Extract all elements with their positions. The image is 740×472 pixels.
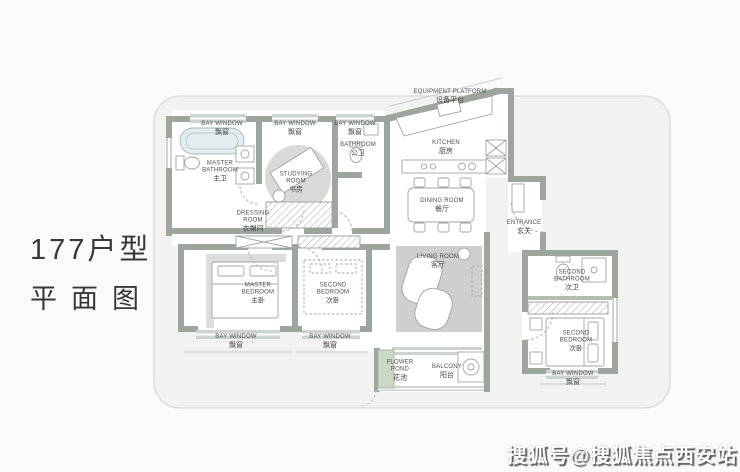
plan-title-line2: 平面图: [30, 277, 153, 316]
second-bed-left-icon: [304, 260, 362, 314]
side-table-icon: [458, 248, 470, 260]
bathtub-icon: [180, 128, 244, 154]
floor-plan-page: { "title": { "line1": "177户型", "line2": …: [0, 0, 740, 472]
master-closet: [236, 236, 292, 248]
second-closet-left: [298, 236, 360, 248]
washing-machine-icon: [458, 352, 484, 382]
flower-pond-strip: [378, 350, 394, 388]
second-closet-right: [528, 302, 608, 314]
watermark-text: 搜狐号@搜狐焦点西安站: [506, 439, 737, 468]
chair-icon: [273, 190, 285, 202]
master-bed-icon: [206, 254, 286, 328]
dressing-closet: [266, 202, 332, 228]
plan-title: 177户型 平面图: [30, 226, 153, 316]
dining-table-icon: [408, 178, 474, 232]
shoe-cabinet: [512, 184, 524, 212]
toilet-icon-master: [176, 156, 200, 170]
plan-title-line1: 177户型: [30, 226, 153, 268]
